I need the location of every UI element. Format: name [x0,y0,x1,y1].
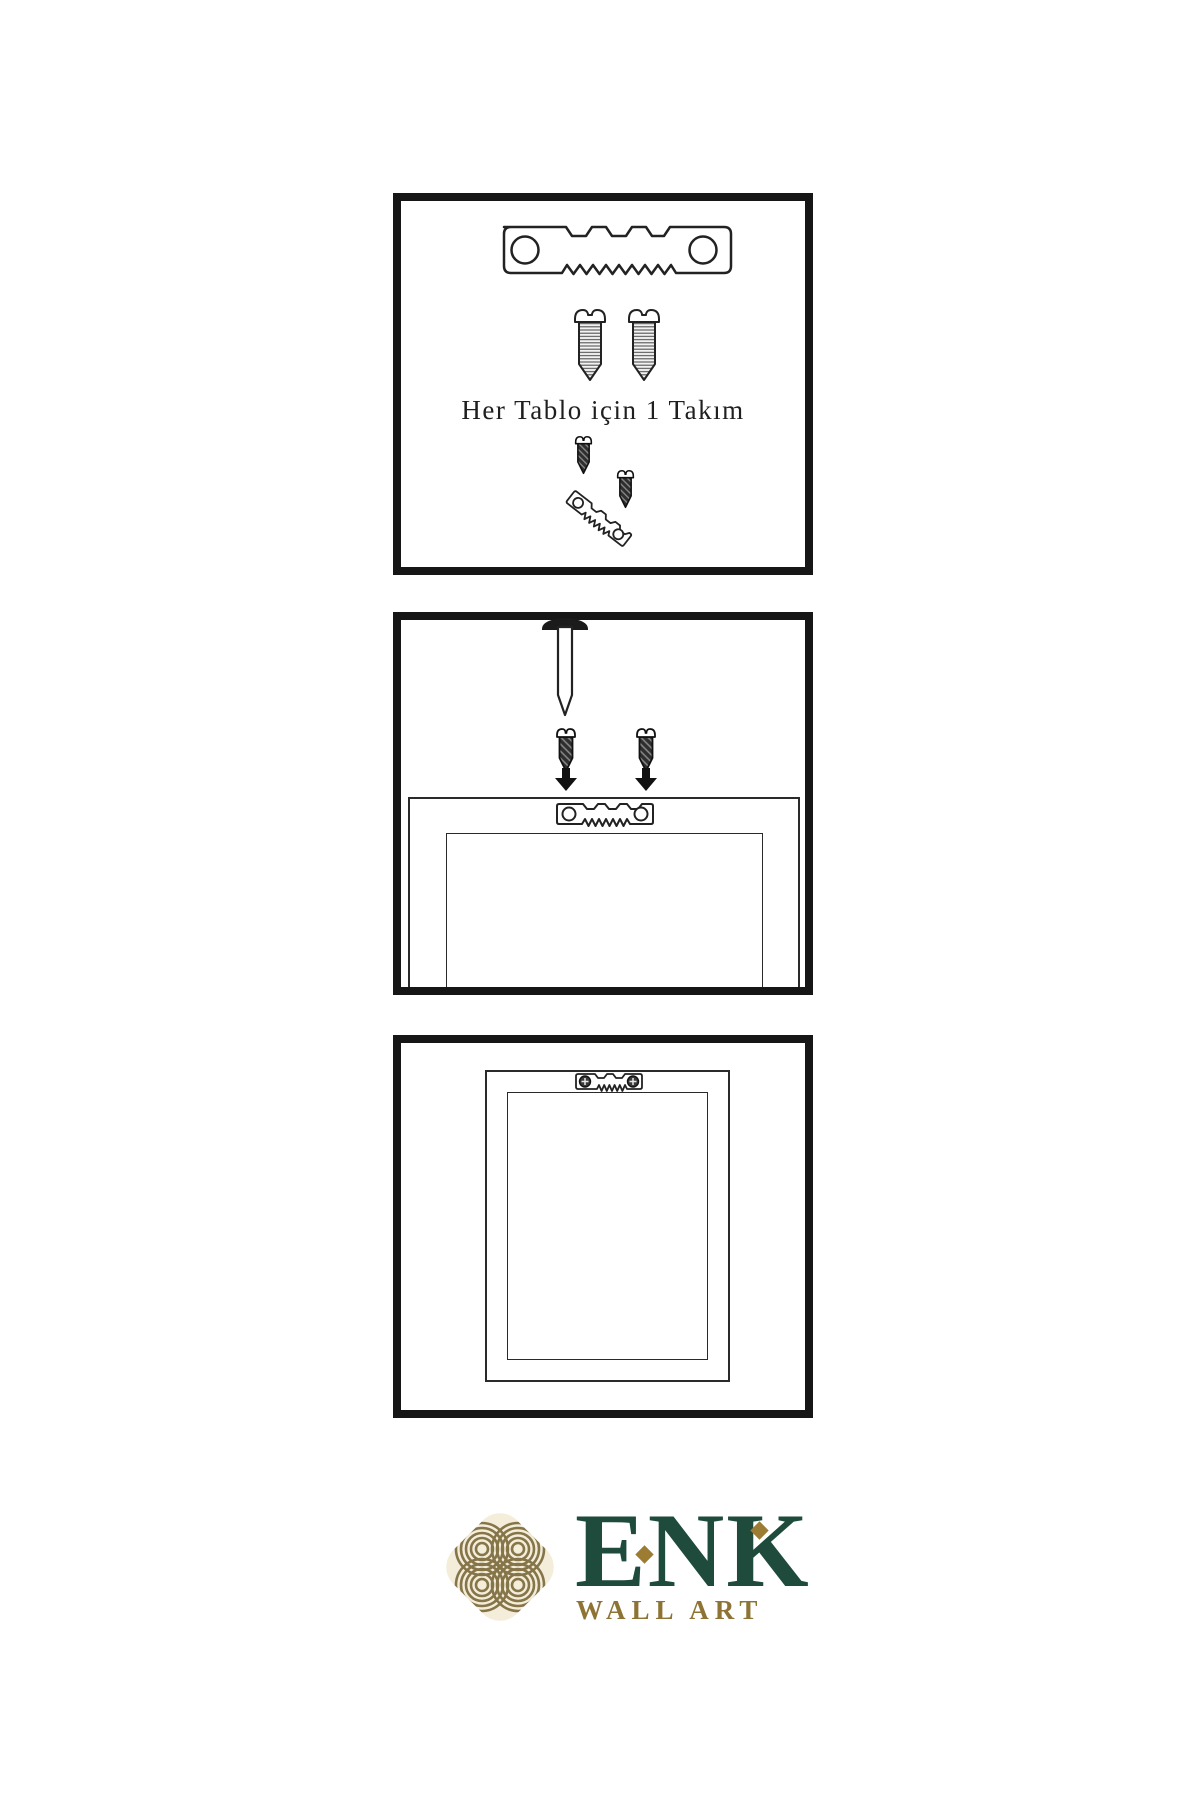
kit-caption: Her Tablo için 1 Takım [401,395,805,426]
instruction-sheet: Her Tablo için 1 Takım [0,0,1200,1800]
sawtooth-hanger-icon [553,801,657,827]
dark-screw-icon [554,727,578,773]
picture-frame-inner [507,1092,708,1360]
brand-name: ENK [575,1498,811,1604]
down-arrow-icon [555,768,577,792]
screw-icon [626,306,662,382]
hanger-assembly-icon [543,435,667,555]
brand-logo: ENK WALL ART [430,1496,830,1666]
knot-logo-icon [437,1502,563,1633]
installed-hanger-icon [573,1072,645,1092]
picture-frame-inner [446,833,763,987]
down-arrow-icon [635,768,657,792]
panel-hardware-kit: Her Tablo için 1 Takım [393,193,813,575]
brand-subtitle: WALL ART [576,1595,763,1626]
nail-icon [541,613,589,719]
dark-screw-icon [634,727,658,773]
sawtooth-hanger-icon [492,222,736,278]
panel-install-step [393,612,813,995]
screw-icon [572,306,608,382]
panel-hang-step [393,1035,813,1418]
